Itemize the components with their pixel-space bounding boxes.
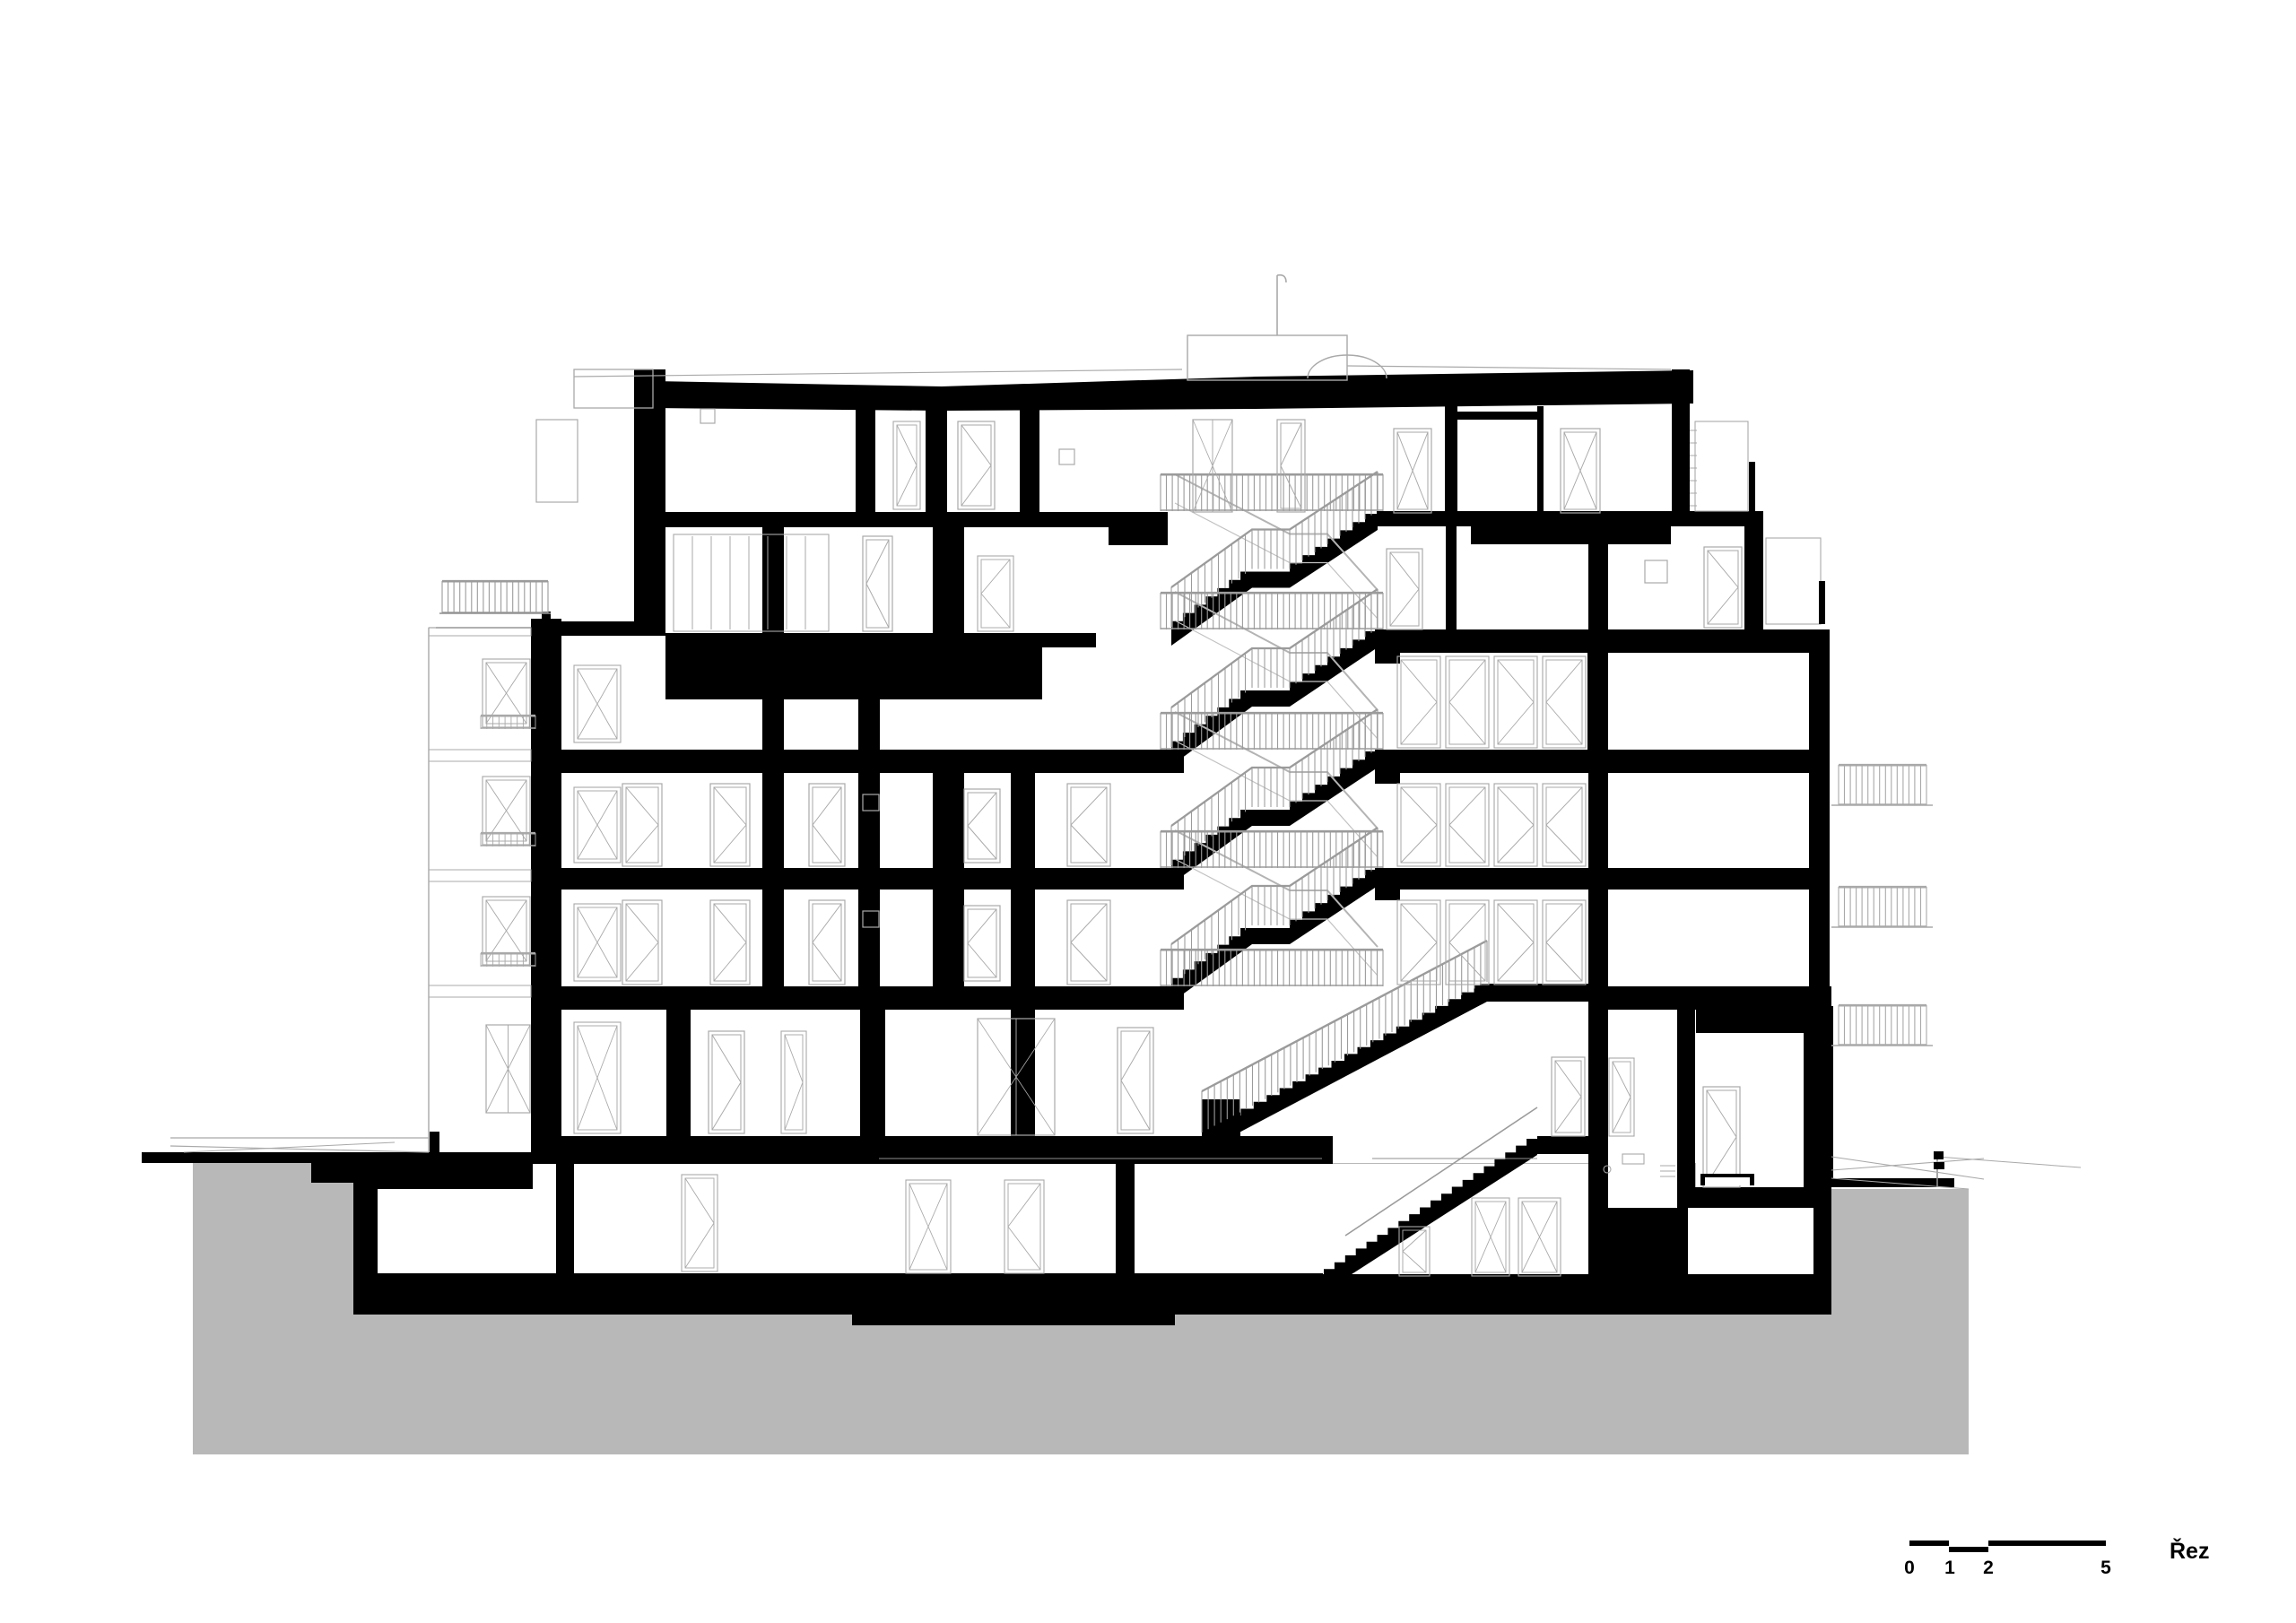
svg-text:5: 5 [2100,1558,2111,1578]
svg-text:2: 2 [1983,1558,1994,1578]
svg-text:0: 0 [1904,1558,1915,1578]
svg-text:1: 1 [1944,1558,1955,1578]
svg-text:Řez: Řez [2170,1537,2209,1564]
